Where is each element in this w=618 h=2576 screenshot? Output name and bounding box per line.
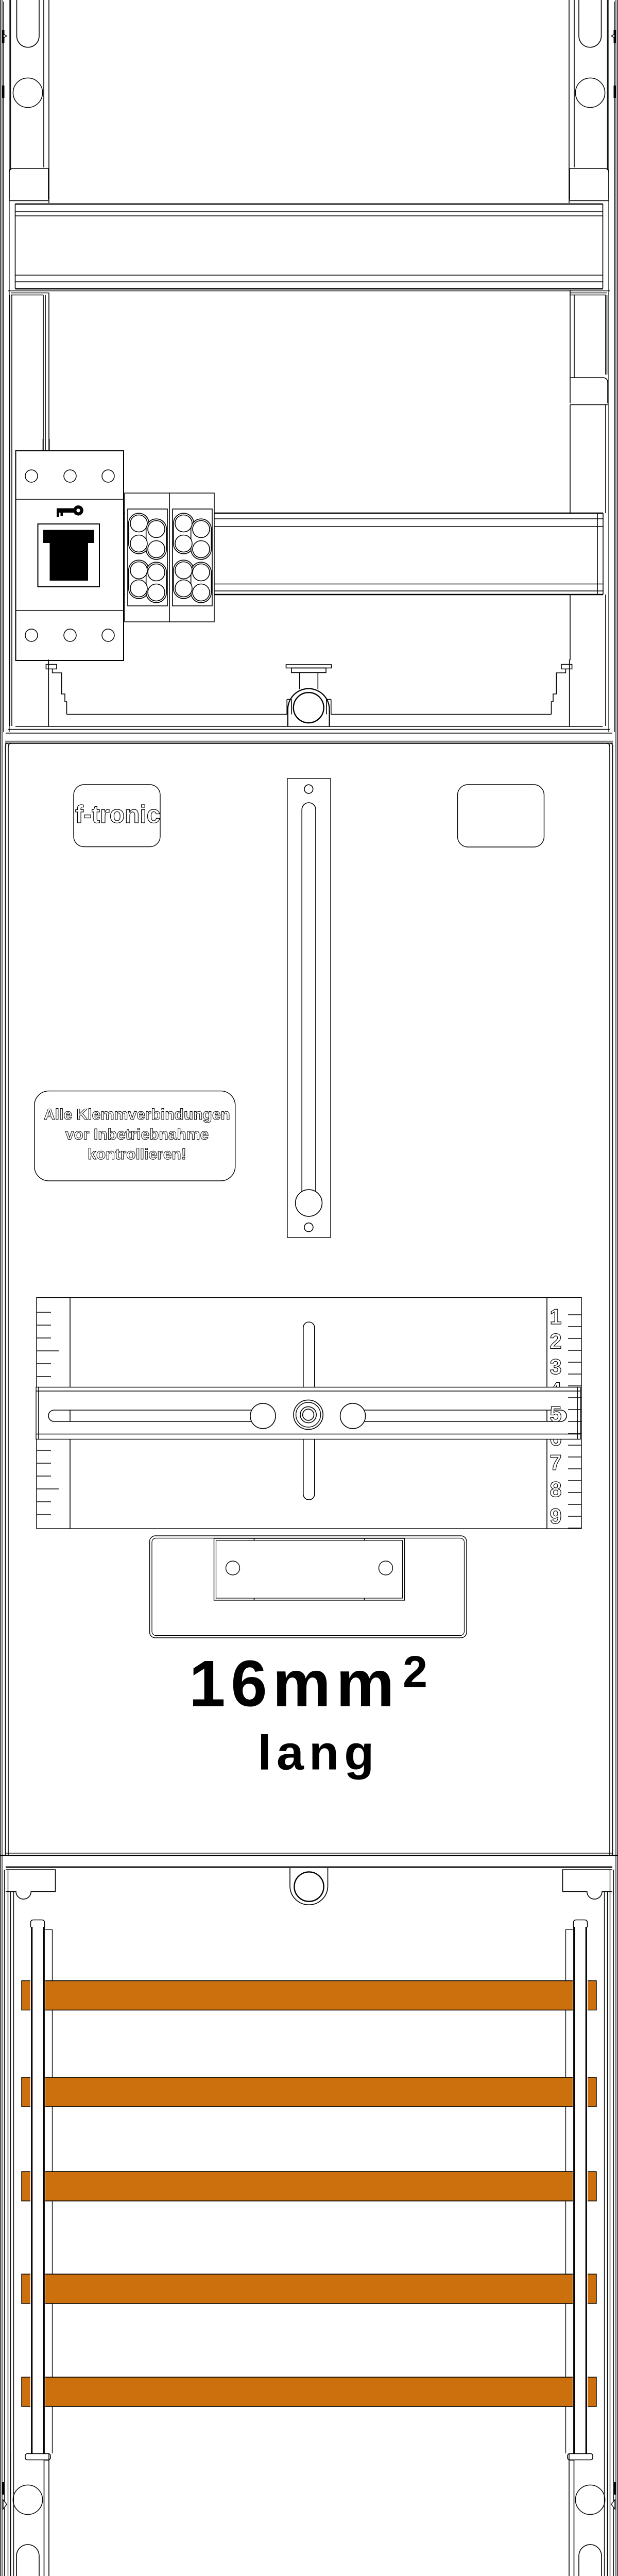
svg-text:lang: lang xyxy=(257,1726,379,1781)
svg-text:3: 3 xyxy=(550,1354,561,1379)
svg-text:2: 2 xyxy=(550,1329,561,1353)
svg-text:f-tronic: f-tronic xyxy=(75,801,160,828)
svg-text:8: 8 xyxy=(550,1477,561,1501)
svg-text:1: 1 xyxy=(550,1304,561,1329)
svg-text:kontrollieren!: kontrollieren! xyxy=(88,1146,186,1163)
svg-text:7: 7 xyxy=(550,1450,561,1475)
svg-text:9: 9 xyxy=(550,1504,561,1528)
svg-text:5: 5 xyxy=(550,1402,561,1426)
svg-text:Alle Klemmverbindungen: Alle Klemmverbindungen xyxy=(44,1106,230,1123)
svg-text:16mm2: 16mm2 xyxy=(189,1647,427,1720)
svg-text:vor Inbetriebnahme: vor Inbetriebnahme xyxy=(65,1126,209,1143)
